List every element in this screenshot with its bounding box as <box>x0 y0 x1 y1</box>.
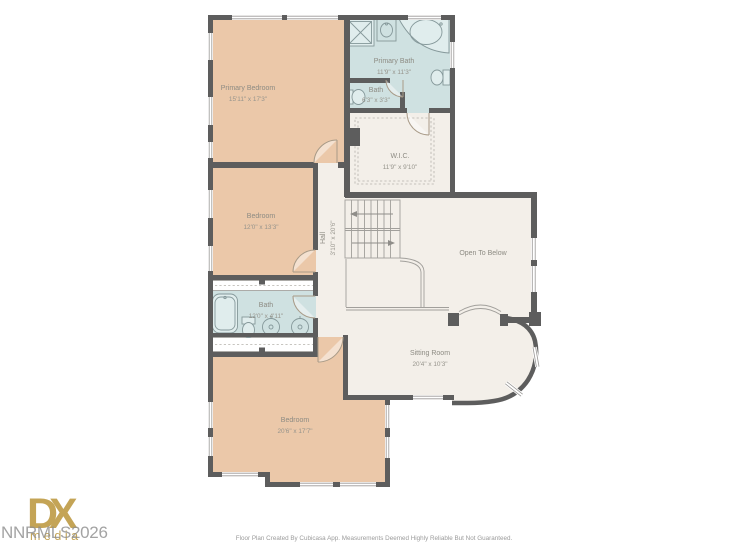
dims-upper-bath: 6'3" x 3'3" <box>362 97 390 104</box>
label-bedroom-middle: Bedroom <box>247 213 276 220</box>
bathtub <box>213 294 238 333</box>
window <box>385 437 390 458</box>
label-bedroom-lower: Bedroom <box>281 417 310 424</box>
window <box>340 482 376 487</box>
window <box>531 266 537 292</box>
label-open-to-below: Open To Below <box>459 250 507 257</box>
label-sitting-room: Sitting Room <box>410 350 450 357</box>
window <box>208 190 213 218</box>
room-open-to-below <box>345 197 537 317</box>
label-bath-middle: Bath <box>259 302 274 309</box>
toilet <box>431 70 450 85</box>
label-upper-bath: Bath <box>369 87 384 94</box>
dims-bedroom-lower: 20'6" x 17'7" <box>277 428 312 435</box>
label-primary-bath: Primary Bath <box>374 58 415 65</box>
floor-plan-drawing: Primary Bedroom 15'11" x 17'3" Primary B… <box>0 0 747 560</box>
window <box>385 405 390 428</box>
dims-primary-bedroom: 15'11" x 17'3" <box>229 96 267 103</box>
window <box>300 482 333 487</box>
dims-sitting-room: 20'4" x 10'3" <box>412 361 447 368</box>
window <box>413 395 443 400</box>
branding: DX media NNRMLS2026 <box>1 490 108 543</box>
disclaimer-text: Floor Plan Created By Cubicasa App. Meas… <box>236 535 513 542</box>
label-primary-bedroom: Primary Bedroom <box>221 85 276 92</box>
dims-bath-middle: 12'0" x 4'11" <box>249 313 284 320</box>
window <box>208 437 213 456</box>
window <box>208 97 213 125</box>
dims-primary-bath: 11'9" x 11'3" <box>377 69 411 76</box>
window <box>450 42 455 68</box>
dims-hall: 3'10" x 20'6" <box>330 220 337 255</box>
floor-plan-page: Primary Bedroom 15'11" x 17'3" Primary B… <box>0 0 747 560</box>
window <box>222 472 258 477</box>
window <box>208 246 213 271</box>
dims-bedroom-middle: 12'0" x 13'3" <box>243 224 278 231</box>
window <box>232 15 282 20</box>
mls-watermark: NNRMLS2026 <box>1 523 108 542</box>
dims-wic: 11'9" x 9'10" <box>383 164 418 171</box>
window <box>208 402 213 428</box>
window <box>208 142 213 158</box>
label-wic: W.I.C. <box>390 153 409 160</box>
window <box>287 15 338 20</box>
shower <box>347 19 374 46</box>
window <box>408 15 441 20</box>
label-hall: Hall <box>320 232 327 245</box>
window <box>208 33 213 60</box>
window <box>531 238 537 260</box>
